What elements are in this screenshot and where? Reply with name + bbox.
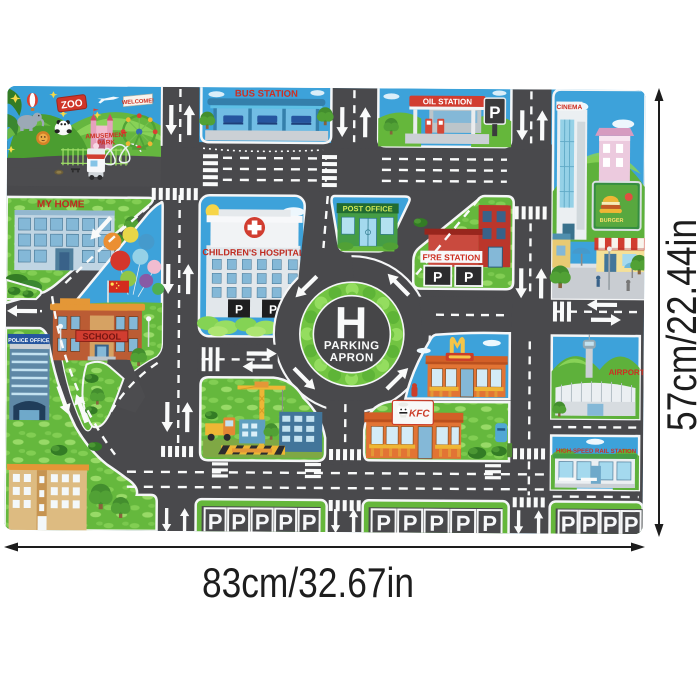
svg-text:MY HOME: MY HOME <box>37 199 85 210</box>
svg-text:83cm/32.67in: 83cm/32.67in <box>202 559 414 606</box>
svg-text:BUS STATION: BUS STATION <box>235 88 298 99</box>
svg-text:OIL STATION: OIL STATION <box>423 97 473 106</box>
svg-text:P: P <box>302 510 317 535</box>
svg-text:AIRPORT: AIRPORT <box>609 368 645 377</box>
svg-text:P: P <box>433 269 442 285</box>
svg-text:PARK: PARK <box>97 139 116 147</box>
svg-text:P: P <box>456 511 471 536</box>
svg-text:57cm/22.44in: 57cm/22.44in <box>658 219 700 431</box>
svg-text:POLICE OFFICE: POLICE OFFICE <box>8 338 50 344</box>
svg-text:BURGER: BURGER <box>600 218 624 224</box>
svg-text:P: P <box>624 512 639 537</box>
svg-text:P: P <box>403 511 418 536</box>
svg-text:P: P <box>464 269 473 285</box>
svg-text:KFC: KFC <box>409 409 430 420</box>
svg-text:P: P <box>561 512 576 537</box>
svg-text:P: P <box>278 510 293 535</box>
svg-text:P: P <box>255 510 270 535</box>
svg-text:P: P <box>482 511 497 536</box>
svg-text:P: P <box>489 103 500 122</box>
svg-text:P: P <box>231 509 246 534</box>
svg-text:CHILDREN'S HOSPITAL: CHILDREN'S HOSPITAL <box>202 247 305 258</box>
svg-text:APRON: APRON <box>330 352 374 364</box>
svg-text:P: P <box>603 512 618 537</box>
svg-text:P: P <box>208 509 223 534</box>
svg-text:P: P <box>235 302 243 316</box>
svg-text:SCHOOL: SCHOOL <box>83 331 122 341</box>
svg-text:P: P <box>582 512 597 537</box>
svg-text:P: P <box>376 510 391 535</box>
svg-text:P: P <box>429 511 444 536</box>
svg-text:CINEMA: CINEMA <box>557 104 583 111</box>
svg-text:POST OFFICE: POST OFFICE <box>343 204 393 213</box>
svg-text:PARKING: PARKING <box>324 340 380 352</box>
